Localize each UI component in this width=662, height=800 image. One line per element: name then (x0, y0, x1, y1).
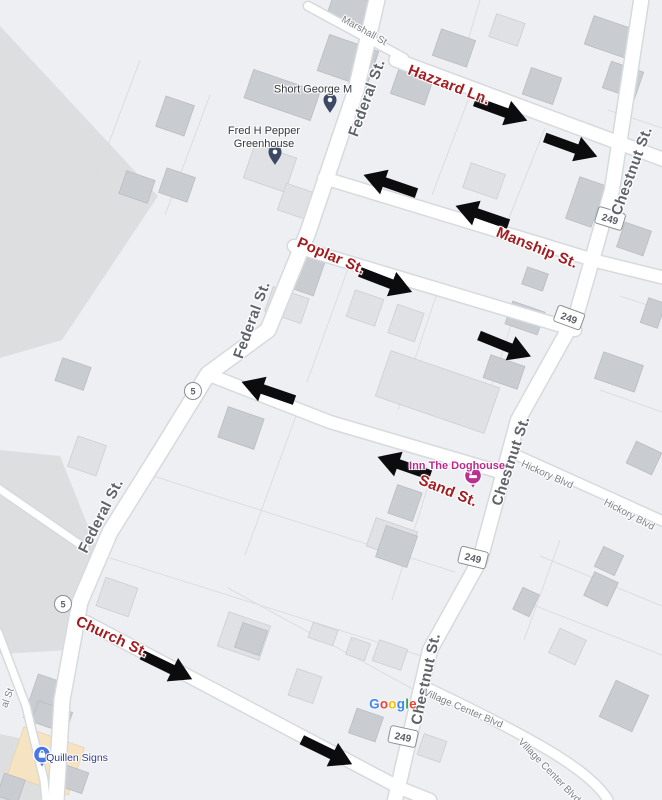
map-canvas[interactable]: 24924924924955 Marshall St Federal St. H… (0, 0, 662, 800)
pin-dot (328, 98, 333, 103)
watermark-letter: o (388, 697, 396, 712)
watermark-letter: G (369, 697, 380, 712)
watermark-letter: e (409, 697, 417, 712)
bed-pillow-icon (470, 472, 473, 475)
route-shield-label: 5 (190, 387, 195, 397)
route-shield-5: 5 (55, 596, 72, 613)
google-watermark[interactable]: Google (369, 697, 417, 712)
basemap: 24924924924955 (0, 0, 662, 800)
poi-label-quillen-signs[interactable]: Quillen Signs (46, 752, 108, 764)
shopping-bag-icon (39, 753, 45, 758)
bed-icon (469, 475, 477, 478)
watermark-letter: o (380, 697, 388, 712)
route-shield-label: 5 (60, 600, 65, 610)
poi-label-line: Greenhouse (228, 138, 300, 151)
route-shield-5: 5 (185, 383, 202, 400)
poi-label-short-george-m[interactable]: Short George M (274, 83, 352, 96)
poi-label-line: Fred H Pepper (228, 125, 300, 138)
poi-label-fred-h-pepper-greenhouse[interactable]: Fred H Pepper Greenhouse (228, 125, 300, 151)
watermark-letter: g (397, 697, 405, 712)
poi-label-inn-the-doghouse[interactable]: Inn The Doghouse (409, 460, 505, 472)
